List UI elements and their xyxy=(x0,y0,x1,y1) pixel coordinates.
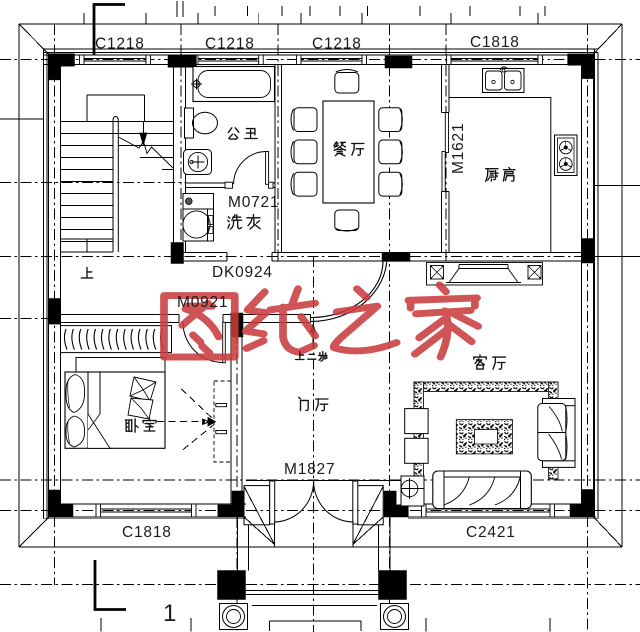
svg-text:C2421: C2421 xyxy=(466,524,516,541)
svg-text:DK0924: DK0924 xyxy=(212,264,273,281)
svg-text:M0721: M0721 xyxy=(228,194,279,211)
svg-text:C1218: C1218 xyxy=(95,36,145,53)
svg-text:C1818: C1818 xyxy=(470,34,520,51)
svg-text:M1621: M1621 xyxy=(450,123,467,174)
svg-text:1: 1 xyxy=(163,600,177,627)
svg-text:C1218: C1218 xyxy=(312,36,362,53)
svg-text:M0921: M0921 xyxy=(177,294,228,311)
svg-text:M1827: M1827 xyxy=(284,461,335,478)
svg-text:C1218: C1218 xyxy=(205,36,255,53)
svg-text:C1818: C1818 xyxy=(122,524,172,541)
